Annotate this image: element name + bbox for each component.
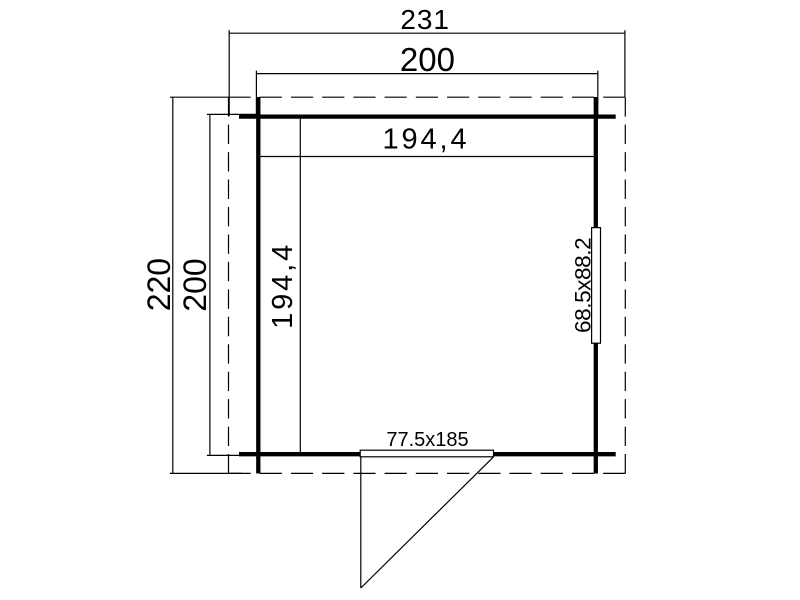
svg-text:200: 200 (177, 258, 213, 311)
svg-text:68.5x88.2: 68.5x88.2 (571, 238, 596, 333)
svg-text:220: 220 (141, 258, 177, 311)
svg-text:194,4: 194,4 (382, 124, 469, 156)
svg-text:77.5x185: 77.5x185 (386, 429, 468, 451)
svg-text:194,4: 194,4 (267, 242, 299, 329)
svg-text:231: 231 (400, 4, 449, 35)
svg-text:200: 200 (400, 41, 455, 78)
